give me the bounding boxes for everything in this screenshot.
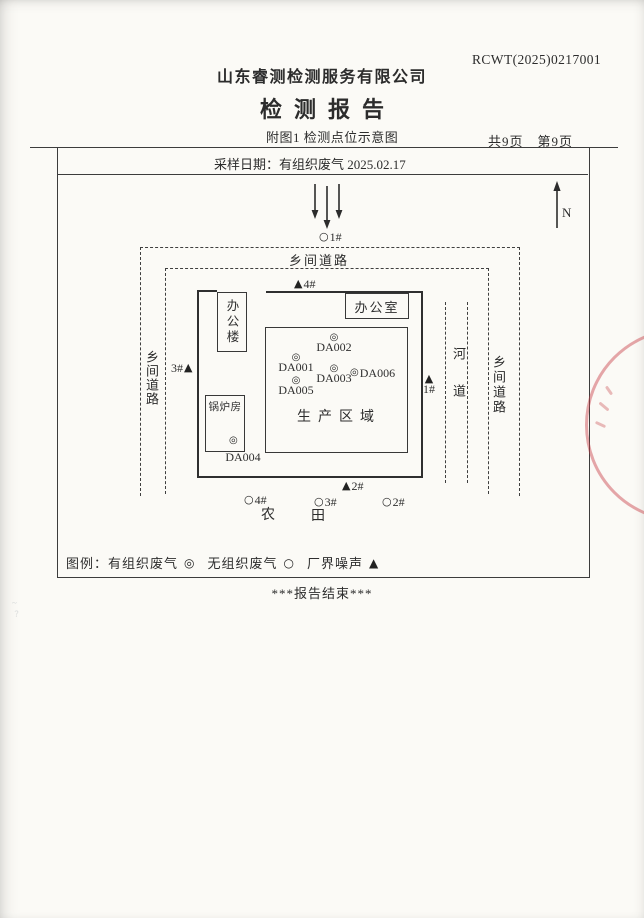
noise-point-4: ▲4#	[294, 278, 315, 290]
legend-label: 图例：	[66, 553, 108, 572]
office-room: 办公室	[345, 293, 409, 319]
organized-gas-icon: ◎	[229, 435, 238, 446]
legend-item-noise: 厂界噪声	[307, 553, 363, 572]
da-point-DA004-label: DA004	[215, 450, 271, 465]
organized-gas-icon: ◎	[184, 556, 195, 570]
production-area-label: 生产区域	[297, 406, 381, 426]
office-building-label: 办公楼	[223, 299, 242, 346]
farmland-label-tian: 田	[311, 505, 325, 525]
river-label: 河道	[449, 347, 468, 421]
farmland-label-nong: 农	[261, 504, 275, 524]
report-page: RCWT(2025)0217001 山东睿测检测服务有限公司 检测报告 附图1 …	[0, 0, 644, 918]
da-point-DA002: ◎ DA002	[306, 333, 362, 353]
da-point-DA006: ◎DA006	[350, 367, 395, 379]
legend: 图例： 有组织废气 ◎ 无组织废气 ○ 厂界噪声 ▲	[66, 553, 391, 572]
unorganized-gas-icon: ○	[284, 556, 295, 570]
noise-point-3: 3#▲	[171, 362, 192, 374]
road-label-top: 乡间道路	[289, 250, 349, 269]
office-room-label: 办公室	[354, 297, 399, 316]
unorganized-gas-icon: ○	[319, 231, 329, 243]
noise-point-1: ▲ 1#	[418, 373, 440, 395]
legend-item-organized: 有组织废气	[108, 553, 178, 572]
da-point-DA005: ◎ DA005	[268, 376, 324, 396]
boiler-room: 锅炉房	[205, 395, 245, 452]
red-seal	[585, 328, 644, 522]
wind-arrows-icon	[310, 183, 348, 231]
factory-wall-left	[197, 290, 199, 478]
boiler-room-label: 锅炉房	[206, 396, 244, 414]
noise-icon: ▲	[342, 480, 350, 492]
road-label-right: 乡间道路	[489, 355, 508, 415]
figure-caption: 附图1 检测点位示意图	[266, 127, 398, 146]
unorganized-gas-icon: ○	[244, 494, 254, 506]
office-building: 办公楼	[217, 292, 247, 352]
road-label-left: 乡间道路	[142, 350, 161, 406]
organized-gas-icon: ◎	[350, 367, 359, 379]
factory-wall-bottom	[197, 476, 423, 478]
unorganized-point-2: ○2#	[382, 496, 405, 508]
noise-icon: ▲	[184, 362, 192, 374]
noise-icon: ▲	[369, 556, 379, 570]
report-title: 检测报告	[0, 92, 644, 124]
sampling-row-divider	[57, 174, 588, 175]
noise-icon: ▲	[294, 278, 302, 290]
factory-wall-top-stub	[197, 290, 217, 292]
unorganized-gas-icon: ○	[382, 496, 392, 508]
scan-marks: ~﹖	[12, 598, 21, 618]
unorganized-point-1: ○1#	[319, 231, 342, 243]
legend-item-unorganized: 无组织废气	[208, 553, 278, 572]
north-label: N	[562, 205, 571, 221]
sampling-date-row: 采样日期：有组织废气 2025.02.17	[214, 154, 406, 173]
company-name: 山东睿测检测服务有限公司	[0, 63, 644, 87]
noise-point-2: ▲2#	[342, 480, 363, 492]
end-note: ***报告结束***	[0, 583, 644, 602]
river-line-left	[445, 302, 446, 483]
